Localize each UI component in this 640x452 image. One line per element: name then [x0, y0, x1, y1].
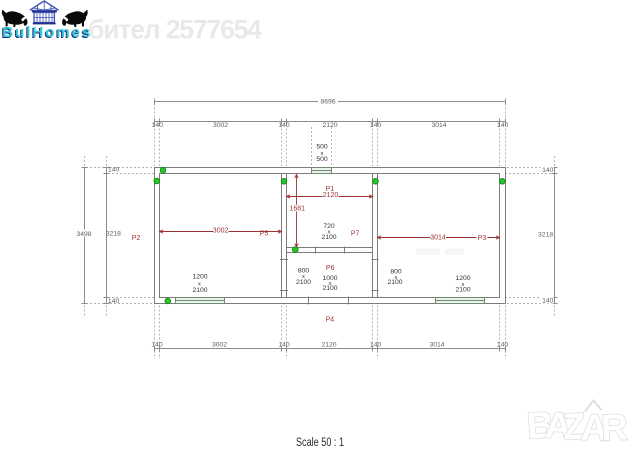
svg-text:3218: 3218: [538, 231, 553, 238]
svg-text:2100: 2100: [455, 286, 470, 293]
svg-text:140: 140: [151, 342, 163, 349]
svg-text:140: 140: [278, 342, 290, 349]
svg-text:140: 140: [108, 167, 120, 174]
svg-text:R: R: [600, 406, 628, 448]
svg-text:140: 140: [497, 342, 509, 349]
svg-text:3218: 3218: [106, 230, 121, 237]
svg-text:3498: 3498: [76, 231, 91, 238]
svg-text:3002: 3002: [212, 342, 227, 349]
svg-text:500: 500: [316, 143, 328, 150]
svg-text:2100: 2100: [387, 279, 402, 286]
svg-text:3014: 3014: [431, 122, 446, 129]
svg-text:3014: 3014: [429, 342, 444, 349]
svg-text:140: 140: [278, 122, 290, 129]
svg-text:P7: P7: [351, 231, 360, 238]
svg-text:140: 140: [542, 167, 554, 174]
svg-text:140: 140: [497, 122, 509, 129]
svg-text:2100: 2100: [322, 285, 337, 292]
svg-text:2120: 2120: [321, 342, 336, 349]
svg-text:140: 140: [108, 298, 120, 305]
svg-text:1200: 1200: [192, 273, 207, 280]
svg-text:140: 140: [152, 122, 164, 129]
svg-text:2120: 2120: [322, 122, 337, 129]
svg-text:2100: 2100: [296, 279, 311, 286]
svg-text:Scale 50 : 1: Scale 50 : 1: [296, 437, 344, 449]
svg-text:3002: 3002: [213, 122, 228, 129]
svg-text:8696: 8696: [320, 99, 335, 106]
svg-text:2100: 2100: [321, 234, 336, 241]
svg-text:BulHomes: BulHomes: [2, 24, 90, 41]
svg-text:500: 500: [316, 156, 328, 163]
svg-text:3002: 3002: [213, 228, 229, 235]
svg-text:P5: P5: [260, 231, 269, 238]
svg-text:3014: 3014: [430, 235, 446, 242]
svg-text:P4: P4: [326, 317, 335, 324]
svg-text:1681: 1681: [290, 206, 306, 213]
svg-text:бител 2577654: бител 2577654: [88, 15, 262, 45]
svg-text:140: 140: [542, 298, 554, 305]
svg-text:140: 140: [370, 122, 382, 129]
svg-text:P6: P6: [326, 265, 335, 272]
svg-text:2100: 2100: [192, 287, 207, 294]
svg-text:140: 140: [370, 342, 382, 349]
svg-text:P2: P2: [132, 235, 141, 242]
svg-text:2120: 2120: [323, 192, 339, 199]
svg-text:P3: P3: [478, 235, 487, 242]
